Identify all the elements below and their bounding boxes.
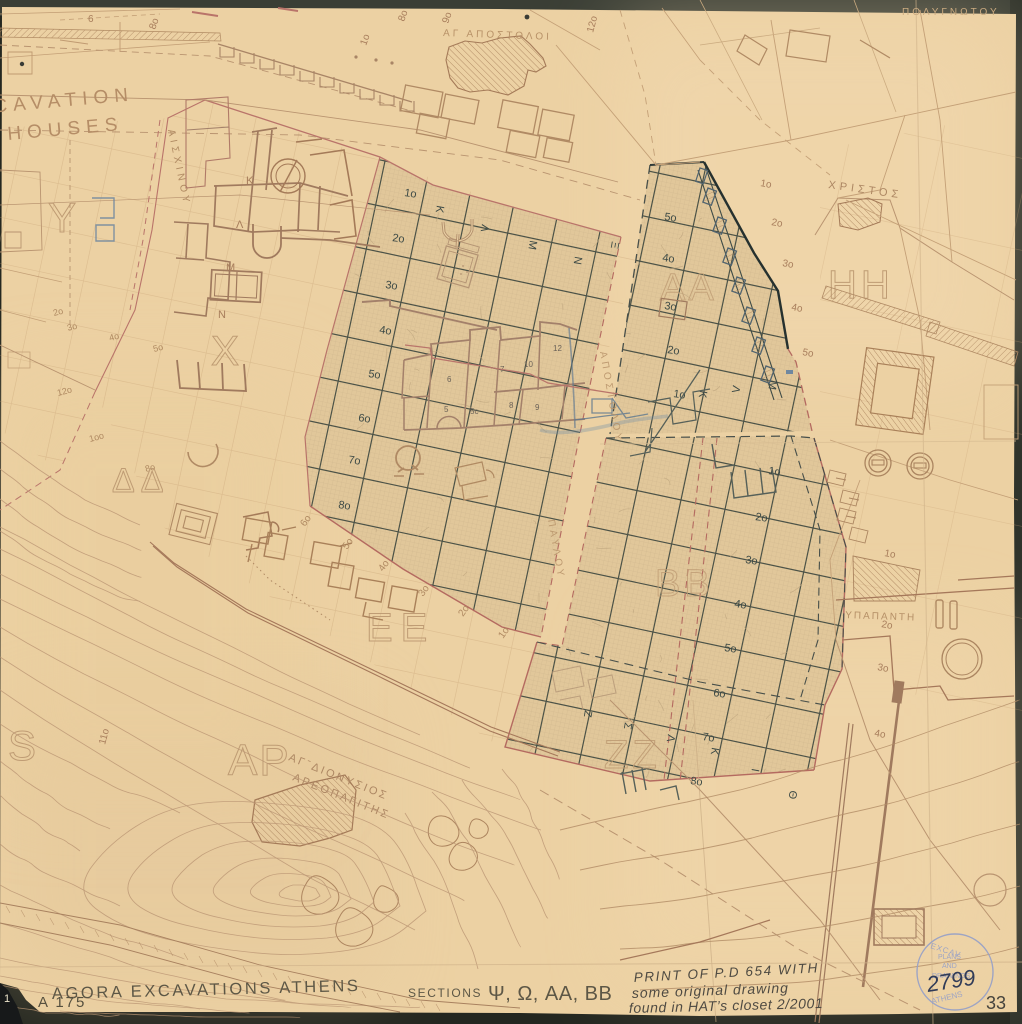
svg-text:2o: 2o — [392, 232, 406, 246]
svg-text:K: K — [246, 175, 254, 187]
svg-text:SECTIONS: SECTIONS — [408, 986, 482, 1000]
svg-text:6: 6 — [88, 14, 94, 25]
svg-text:3o: 3o — [385, 279, 399, 293]
svg-text:1: 1 — [4, 993, 10, 1005]
svg-text:7o: 7o — [702, 731, 716, 745]
svg-text:M: M — [226, 262, 235, 274]
svg-text:5: 5 — [444, 405, 449, 414]
svg-text:10: 10 — [524, 360, 533, 369]
svg-text:2o: 2o — [667, 344, 681, 358]
svg-text:8: 8 — [509, 401, 514, 410]
svg-text:Λ: Λ — [236, 219, 244, 231]
svg-text:33: 33 — [986, 993, 1006, 1013]
svg-text:6o: 6o — [713, 687, 727, 701]
svg-text:5o: 5o — [368, 368, 382, 382]
svg-text:BB: BB — [655, 563, 714, 605]
svg-text:6: 6 — [447, 375, 452, 384]
svg-text:S: S — [8, 722, 36, 769]
svg-text:9: 9 — [535, 403, 540, 412]
svg-text:5o: 5o — [664, 211, 678, 225]
svg-text:5o: 5o — [724, 642, 738, 656]
svg-text:AP: AP — [228, 736, 291, 785]
svg-text:Y: Y — [48, 194, 78, 241]
svg-text:5c: 5c — [470, 407, 478, 416]
svg-text:EE: EE — [366, 606, 435, 650]
svg-text:12: 12 — [553, 344, 562, 353]
svg-text:1o: 1o — [404, 187, 418, 201]
svg-text:N: N — [218, 309, 226, 321]
svg-text:4o: 4o — [734, 598, 748, 612]
svg-text:4o: 4o — [379, 324, 393, 338]
svg-text:X: X — [211, 327, 239, 374]
svg-text:6o: 6o — [358, 412, 372, 426]
svg-text:1o: 1o — [768, 465, 782, 479]
svg-text:7o: 7o — [348, 454, 362, 468]
svg-text:AA: AA — [660, 267, 717, 309]
svg-text:ΔΔ: ΔΔ — [112, 462, 169, 500]
svg-text:A 175: A 175 — [38, 994, 86, 1011]
svg-text:8o: 8o — [338, 499, 352, 513]
svg-text:2o: 2o — [755, 511, 769, 525]
svg-text:4o: 4o — [662, 252, 676, 266]
svg-text:3o: 3o — [745, 554, 759, 568]
svg-text:PLANS: PLANS — [938, 954, 961, 961]
svg-text:Ψ, Ω, AA, BB: Ψ, Ω, AA, BB — [488, 983, 612, 1005]
